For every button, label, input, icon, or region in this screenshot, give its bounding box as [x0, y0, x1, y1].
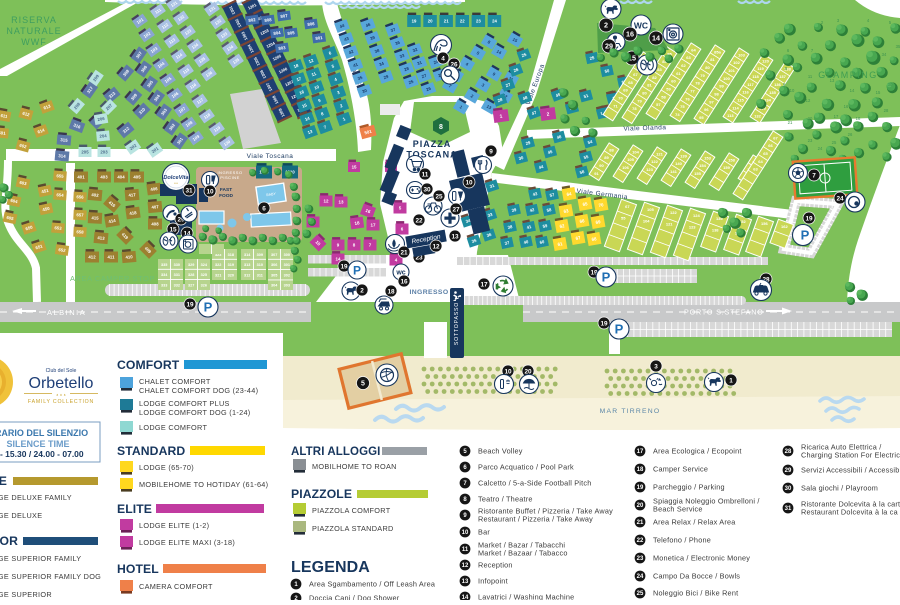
- svg-text:23: 23: [808, 138, 813, 143]
- svg-text:Telefono / Phone: Telefono / Phone: [653, 536, 711, 545]
- svg-text:11: 11: [462, 547, 469, 553]
- svg-text:4: 4: [441, 55, 445, 62]
- svg-text:Orbetello: Orbetello: [29, 375, 94, 392]
- svg-text:66: 66: [768, 143, 773, 148]
- svg-text:310: 310: [257, 263, 263, 267]
- svg-text:332: 332: [174, 283, 180, 287]
- svg-text:3: 3: [654, 363, 658, 370]
- svg-text:FAST: FAST: [220, 187, 232, 193]
- svg-text:17: 17: [637, 449, 644, 455]
- svg-text:14: 14: [850, 88, 855, 93]
- svg-text:326: 326: [201, 283, 207, 287]
- svg-text:408: 408: [151, 222, 159, 227]
- svg-text:21: 21: [637, 520, 644, 526]
- svg-text:327: 327: [188, 283, 194, 287]
- svg-text:NATURALE: NATURALE: [6, 26, 61, 36]
- svg-text:334: 334: [161, 273, 168, 277]
- svg-text:15: 15: [352, 165, 357, 170]
- svg-text:CHALET COMFORT DOG (23-44): CHALET COMFORT DOG (23-44): [139, 386, 258, 395]
- svg-text:123: 123: [689, 225, 696, 230]
- svg-text:9: 9: [489, 148, 493, 155]
- svg-text:205: 205: [81, 150, 89, 155]
- svg-text:Beach Service: Beach Service: [653, 505, 703, 514]
- svg-text:140: 140: [675, 161, 682, 166]
- svg-text:17: 17: [480, 281, 488, 288]
- svg-text:81: 81: [647, 83, 652, 88]
- svg-text:300: 300: [284, 253, 290, 257]
- svg-text:FAMILY COLLECTION: FAMILY COLLECTION: [28, 399, 94, 405]
- svg-text:Viale Toscana: Viale Toscana: [247, 153, 294, 160]
- svg-text:10: 10: [790, 88, 795, 93]
- svg-text:16: 16: [844, 104, 849, 109]
- svg-text:413: 413: [97, 235, 105, 241]
- svg-text:WC: WC: [634, 21, 648, 31]
- svg-text:LODGE SUPERIOR FAMILY: LODGE SUPERIOR FAMILY: [0, 554, 81, 563]
- svg-text:Teatro / Theatre: Teatro / Theatre: [478, 495, 533, 504]
- svg-text:19: 19: [412, 19, 417, 24]
- svg-text:5: 5: [361, 381, 365, 388]
- svg-text:COMFORT: COMFORT: [117, 358, 180, 372]
- svg-text:162: 162: [781, 224, 788, 229]
- svg-text:78: 78: [632, 106, 637, 111]
- svg-text:MOBILEHOME TO HOTIDAY (61-64): MOBILEHOME TO HOTIDAY (61-64): [139, 480, 268, 489]
- svg-text:22: 22: [637, 538, 644, 544]
- svg-text:16: 16: [400, 278, 408, 285]
- svg-text:13: 13: [830, 78, 835, 83]
- svg-text:29: 29: [785, 468, 792, 474]
- svg-text:121: 121: [666, 222, 673, 227]
- svg-text:13: 13: [451, 233, 459, 240]
- svg-text:320: 320: [228, 273, 234, 277]
- svg-text:Area Relax / Relax Area: Area Relax / Relax Area: [653, 518, 736, 527]
- svg-text:P: P: [801, 228, 810, 243]
- svg-text:404: 404: [117, 175, 125, 180]
- svg-text:90: 90: [599, 163, 604, 168]
- svg-text:LODGE DELUXE FAMILY: LODGE DELUXE FAMILY: [0, 493, 72, 502]
- svg-text:19: 19: [805, 215, 813, 222]
- svg-text:330: 330: [174, 263, 180, 267]
- svg-text:11: 11: [808, 74, 813, 79]
- svg-text:PISCINE: PISCINE: [220, 175, 240, 180]
- svg-text:305: 305: [271, 273, 277, 277]
- svg-text:21: 21: [444, 19, 449, 24]
- svg-text:119: 119: [757, 66, 764, 71]
- svg-text:7: 7: [812, 172, 816, 179]
- svg-text:121: 121: [656, 151, 663, 156]
- svg-text:656: 656: [76, 194, 84, 199]
- svg-text:117: 117: [747, 82, 754, 87]
- svg-text:18: 18: [387, 288, 395, 295]
- svg-text:MAR TIRRENO: MAR TIRRENO: [600, 408, 661, 415]
- svg-text:PIAZZOLE: PIAZZOLE: [291, 487, 352, 501]
- svg-text:Monetica / Electronic Money: Monetica / Electronic Money: [653, 554, 750, 563]
- svg-text:309: 309: [257, 253, 263, 257]
- svg-text:Area Sgambamento / Off Leash A: Area Sgambamento / Off Leash Area: [309, 580, 436, 589]
- svg-text:154: 154: [699, 163, 706, 168]
- svg-text:LODGE COMFORT DOG (1-24): LODGE COMFORT DOG (1-24): [139, 408, 251, 417]
- svg-text:103: 103: [738, 52, 745, 57]
- svg-text:13.00 - 15.30 / 24.00 - 07.00: 13.00 - 15.30 / 24.00 - 07.00: [0, 449, 84, 459]
- svg-text:PIAZZOLA STANDARD: PIAZZOLA STANDARD: [312, 524, 394, 533]
- svg-text:Infopoint: Infopoint: [478, 577, 508, 586]
- svg-text:Bar: Bar: [478, 528, 490, 537]
- svg-text:Noleggio Bici / Bike Rent: Noleggio Bici / Bike Rent: [653, 589, 738, 598]
- svg-text:113: 113: [727, 113, 734, 118]
- svg-text:CAMERA COMFORT: CAMERA COMFORT: [139, 582, 213, 591]
- svg-text:315: 315: [60, 137, 68, 143]
- svg-text:138: 138: [712, 228, 719, 233]
- svg-text:106: 106: [622, 165, 629, 170]
- svg-text:10: 10: [462, 530, 469, 536]
- svg-text:13: 13: [338, 200, 344, 205]
- svg-text:14: 14: [335, 257, 341, 262]
- svg-text:ELITE: ELITE: [117, 502, 152, 516]
- svg-text:74: 74: [675, 112, 680, 117]
- svg-text:307: 307: [271, 253, 277, 257]
- svg-text:97: 97: [709, 99, 714, 104]
- svg-text:Servizi Accessibili / Accessib: Servizi Accessibili / Accessibili: [801, 466, 900, 475]
- svg-text:Parcheggio / Parking: Parcheggio / Parking: [653, 483, 725, 492]
- svg-text:331: 331: [174, 273, 180, 277]
- svg-text:LODGE COMFORT PLUS: LODGE COMFORT PLUS: [139, 399, 230, 408]
- svg-text:101: 101: [728, 68, 735, 73]
- svg-text:69: 69: [623, 88, 628, 93]
- svg-text:LODGE COMFORT: LODGE COMFORT: [139, 423, 207, 432]
- svg-text:14: 14: [652, 34, 660, 43]
- svg-text:DELUXE: DELUXE: [0, 474, 7, 488]
- svg-text:79: 79: [700, 73, 705, 78]
- svg-text:LODGE SUPERIOR: LODGE SUPERIOR: [0, 590, 52, 599]
- svg-text:155: 155: [694, 171, 701, 176]
- svg-text:LODGE ELITE (1-2): LODGE ELITE (1-2): [139, 521, 209, 530]
- svg-text:Restaurant Dolcevita à la ca: Restaurant Dolcevita à la ca: [801, 508, 899, 517]
- svg-text:25: 25: [832, 140, 837, 145]
- svg-text:658: 658: [76, 229, 84, 234]
- svg-text:27: 27: [888, 124, 893, 129]
- svg-text:122: 122: [651, 159, 658, 164]
- svg-text:401: 401: [77, 175, 85, 180]
- svg-text:Lavatrici / Washing Machine: Lavatrici / Washing Machine: [478, 593, 574, 601]
- svg-text:LODGE (65-70): LODGE (65-70): [139, 463, 194, 472]
- svg-text:141: 141: [670, 169, 677, 174]
- svg-text:80: 80: [642, 91, 647, 96]
- svg-text:75: 75: [680, 104, 685, 109]
- svg-text:71: 71: [613, 103, 618, 108]
- svg-text:156: 156: [761, 221, 768, 226]
- svg-text:RISERVA: RISERVA: [11, 15, 57, 25]
- svg-text:312: 312: [244, 273, 250, 277]
- svg-text:303: 303: [284, 284, 290, 288]
- svg-text:22: 22: [460, 19, 465, 24]
- svg-text:13: 13: [462, 579, 469, 585]
- svg-text:61: 61: [676, 71, 681, 76]
- svg-text:322: 322: [215, 263, 221, 267]
- svg-text:19: 19: [340, 263, 348, 270]
- svg-text:136: 136: [774, 82, 781, 87]
- svg-text:DolceVita: DolceVita: [163, 175, 188, 181]
- svg-text:95: 95: [699, 115, 704, 120]
- svg-text:P: P: [615, 322, 624, 337]
- svg-text:657: 657: [76, 212, 84, 217]
- svg-text:63: 63: [753, 167, 758, 172]
- svg-text:314: 314: [58, 153, 66, 159]
- svg-text:LODGE ELITE MAXI (3-18): LODGE ELITE MAXI (3-18): [139, 538, 235, 547]
- svg-text:12: 12: [462, 563, 469, 569]
- svg-text:GLAMPING: GLAMPING: [818, 70, 878, 80]
- svg-text:28: 28: [785, 449, 792, 455]
- svg-text:34: 34: [882, 52, 887, 57]
- svg-text:SUPERIOR: SUPERIOR: [0, 534, 18, 548]
- svg-text:62: 62: [681, 63, 686, 68]
- svg-text:57: 57: [656, 102, 661, 107]
- svg-text:2: 2: [360, 287, 364, 294]
- svg-text:412: 412: [88, 255, 96, 260]
- svg-text:Market / Bazaar / Tabacco: Market / Bazaar / Tabacco: [478, 549, 568, 558]
- svg-text:6: 6: [262, 205, 266, 212]
- svg-text:78: 78: [695, 81, 700, 86]
- svg-text:99: 99: [719, 84, 724, 89]
- svg-text:105: 105: [647, 207, 654, 212]
- svg-text:135: 135: [769, 90, 776, 95]
- svg-text:MOBILHOME TO ROAN: MOBILHOME TO ROAN: [312, 462, 397, 471]
- svg-text:30: 30: [785, 486, 792, 492]
- svg-text:FOOD: FOOD: [219, 193, 233, 199]
- svg-text:8: 8: [439, 124, 443, 131]
- svg-text:318: 318: [228, 253, 234, 257]
- svg-text:329: 329: [188, 263, 194, 267]
- svg-text:81: 81: [710, 57, 715, 62]
- svg-text:104: 104: [643, 219, 650, 224]
- svg-text:304: 304: [271, 284, 278, 288]
- svg-text:124: 124: [693, 213, 700, 218]
- svg-text:PIAZZA: PIAZZA: [413, 139, 452, 149]
- svg-text:417: 417: [128, 192, 136, 198]
- svg-text:122: 122: [670, 210, 677, 215]
- svg-text:19: 19: [637, 485, 644, 491]
- svg-text:STANDARD: STANDARD: [117, 444, 185, 458]
- svg-text:59: 59: [666, 87, 671, 92]
- svg-text:PIAZZOLA COMFORT: PIAZZOLA COMFORT: [312, 506, 391, 515]
- svg-text:654: 654: [56, 192, 64, 198]
- svg-text:653: 653: [54, 225, 62, 231]
- svg-text:19: 19: [600, 320, 608, 327]
- svg-text:67: 67: [625, 204, 630, 209]
- svg-text:407: 407: [151, 204, 159, 210]
- svg-text:20: 20: [808, 116, 813, 121]
- svg-text:321: 321: [215, 273, 221, 277]
- svg-text:26: 26: [848, 132, 853, 137]
- svg-text:64: 64: [758, 159, 763, 164]
- svg-text:333: 333: [161, 283, 167, 287]
- svg-text:ORARIO DEL SILENZIO: ORARIO DEL SILENZIO: [0, 428, 88, 438]
- svg-text:16: 16: [626, 30, 634, 39]
- svg-text:98: 98: [714, 92, 719, 97]
- svg-text:AREA CAMPER STOP: AREA CAMPER STOP: [70, 274, 155, 283]
- svg-text:55: 55: [621, 216, 626, 221]
- svg-text:LODGE DELUXE: LODGE DELUXE: [0, 511, 42, 520]
- svg-text:137: 137: [779, 74, 786, 79]
- svg-text:31: 31: [185, 187, 193, 194]
- svg-text:76: 76: [685, 96, 690, 101]
- svg-text:301: 301: [284, 263, 290, 267]
- svg-text:415: 415: [91, 215, 99, 220]
- svg-text:28: 28: [884, 108, 889, 113]
- svg-text:139: 139: [680, 153, 687, 158]
- svg-text:CHALET COMFORT: CHALET COMFORT: [139, 377, 211, 386]
- svg-text:96: 96: [704, 107, 709, 112]
- svg-text:35: 35: [896, 44, 900, 49]
- svg-text:60: 60: [671, 79, 676, 84]
- svg-text:18: 18: [637, 467, 644, 473]
- svg-text:22: 22: [415, 217, 423, 224]
- svg-text:WWF: WWF: [21, 37, 47, 47]
- svg-text:▲ ▲ ▲: ▲ ▲ ▲: [56, 393, 67, 397]
- svg-text:Reception: Reception: [478, 561, 513, 570]
- svg-text:319: 319: [228, 263, 234, 267]
- svg-text:116: 116: [742, 90, 749, 95]
- svg-text:105: 105: [627, 157, 634, 162]
- svg-text:114: 114: [732, 105, 739, 110]
- svg-text:302: 302: [284, 273, 290, 277]
- svg-text:335: 335: [161, 263, 167, 267]
- svg-text:LODGE SUPERIOR FAMILY DOG: LODGE SUPERIOR FAMILY DOG: [0, 572, 101, 581]
- svg-text:89: 89: [604, 155, 609, 160]
- svg-text:324: 324: [201, 263, 208, 267]
- svg-text:83: 83: [657, 67, 662, 72]
- svg-text:153: 153: [704, 155, 711, 160]
- svg-text:85a: 85a: [714, 49, 721, 54]
- svg-text:14: 14: [462, 595, 469, 600]
- svg-text:313: 313: [244, 263, 250, 267]
- svg-text:70: 70: [618, 96, 623, 101]
- svg-text:Doccia Cani / Dog Shower: Doccia Cani / Dog Shower: [309, 594, 400, 601]
- svg-text:SILENCE TIME: SILENCE TIME: [6, 439, 69, 449]
- svg-text:24: 24: [637, 574, 644, 580]
- svg-text:91: 91: [594, 171, 599, 176]
- svg-text:SOTTOPASSO: SOTTOPASSO: [454, 302, 460, 345]
- svg-text:Sala giochi / Playroom: Sala giochi / Playroom: [801, 484, 878, 493]
- svg-text:Campo Da Bocce / Bowls: Campo Da Bocce / Bowls: [653, 572, 740, 581]
- svg-text:ALBINIA: ALBINIA: [47, 308, 86, 317]
- svg-text:18: 18: [856, 116, 861, 121]
- svg-text:82: 82: [652, 75, 657, 80]
- svg-text:23: 23: [476, 19, 481, 24]
- svg-text:203: 203: [100, 150, 108, 155]
- svg-text:Parco Acquatico / Pool Park: Parco Acquatico / Pool Park: [478, 463, 574, 472]
- svg-text:120: 120: [762, 58, 769, 63]
- svg-text:Area Ecologica / Ecopoint: Area Ecologica / Ecopoint: [653, 447, 742, 456]
- svg-text:20: 20: [637, 503, 644, 509]
- svg-text:15: 15: [876, 90, 881, 95]
- svg-text:Club del Sole: Club del Sole: [46, 368, 77, 374]
- svg-text:403: 403: [100, 175, 108, 180]
- svg-text:58: 58: [661, 94, 666, 99]
- svg-text:30: 30: [888, 82, 893, 87]
- svg-text:INGRESSO: INGRESSO: [409, 289, 448, 296]
- svg-text:2: 2: [604, 21, 608, 30]
- svg-text:10: 10: [206, 188, 214, 195]
- svg-text:655: 655: [56, 173, 64, 179]
- svg-text:Charging Station For Electric: Charging Station For Electric: [801, 451, 900, 460]
- svg-text:405: 405: [133, 175, 141, 180]
- svg-text:24: 24: [492, 19, 497, 24]
- svg-text:24: 24: [836, 195, 844, 202]
- svg-text:21: 21: [788, 120, 793, 125]
- svg-text:104: 104: [632, 149, 639, 154]
- svg-text:LEGENDA: LEGENDA: [291, 559, 370, 576]
- svg-text:1: 1: [729, 377, 733, 384]
- svg-text:328: 328: [188, 273, 194, 277]
- svg-text:23: 23: [637, 556, 644, 562]
- svg-text:64: 64: [691, 47, 696, 52]
- svg-text:12: 12: [432, 243, 440, 250]
- svg-text:314: 314: [244, 253, 251, 257]
- svg-text:Beach Volley: Beach Volley: [478, 447, 523, 456]
- svg-text:10: 10: [465, 179, 473, 186]
- svg-text:19: 19: [186, 301, 194, 308]
- svg-text:100: 100: [723, 76, 730, 81]
- svg-text:118: 118: [752, 74, 759, 79]
- svg-text:31: 31: [785, 506, 792, 512]
- svg-text:17: 17: [834, 114, 839, 119]
- svg-text:63: 63: [686, 55, 691, 60]
- svg-text:159: 159: [723, 165, 730, 170]
- svg-text:Calcetto / 5-a-Side Football P: Calcetto / 5-a-Side Football Pitch: [478, 479, 591, 488]
- svg-text:Camper Service: Camper Service: [653, 465, 708, 474]
- svg-text:132: 132: [754, 113, 761, 118]
- svg-text:411: 411: [108, 255, 116, 260]
- svg-text:204: 204: [99, 133, 107, 139]
- svg-text:88: 88: [609, 147, 614, 152]
- svg-text:102: 102: [733, 60, 740, 65]
- svg-text:P: P: [204, 300, 213, 315]
- svg-text:P: P: [602, 270, 611, 285]
- svg-text:12: 12: [806, 98, 811, 103]
- svg-text:306: 306: [271, 263, 277, 267]
- svg-text:65: 65: [763, 151, 768, 156]
- svg-text:67: 67: [773, 135, 778, 140]
- svg-text:ALTRI ALLOGGI: ALTRI ALLOGGI: [291, 446, 380, 458]
- svg-text:410: 410: [125, 254, 133, 260]
- svg-text:25: 25: [435, 193, 443, 200]
- svg-text:25: 25: [637, 591, 644, 597]
- svg-text:325: 325: [201, 273, 207, 277]
- svg-text:PORTO S.STEFANO: PORTO S.STEFANO: [684, 308, 764, 317]
- svg-text:24: 24: [818, 146, 823, 151]
- svg-text:21: 21: [400, 249, 408, 256]
- svg-text:68: 68: [628, 80, 633, 85]
- svg-text:123: 123: [646, 167, 653, 172]
- svg-text:79: 79: [637, 98, 642, 103]
- svg-text:17: 17: [370, 223, 376, 228]
- svg-text:77: 77: [690, 89, 695, 94]
- svg-text:311: 311: [257, 273, 263, 277]
- svg-text:11: 11: [422, 171, 429, 178]
- svg-text:12: 12: [323, 199, 329, 204]
- svg-text:30: 30: [423, 186, 431, 193]
- svg-text:158: 158: [728, 157, 735, 162]
- svg-text:80: 80: [705, 65, 710, 70]
- svg-text:HOTEL: HOTEL: [117, 562, 159, 576]
- svg-text:Restaurant / Pizzeria / Take A: Restaurant / Pizzeria / Take Away: [478, 515, 593, 524]
- svg-text:20: 20: [428, 19, 433, 24]
- svg-text:22: 22: [790, 136, 795, 141]
- svg-text:115: 115: [737, 98, 744, 103]
- svg-text:27: 27: [452, 206, 460, 213]
- svg-text:402: 402: [91, 192, 99, 198]
- svg-text:67: 67: [633, 72, 638, 77]
- svg-text:P: P: [353, 264, 361, 278]
